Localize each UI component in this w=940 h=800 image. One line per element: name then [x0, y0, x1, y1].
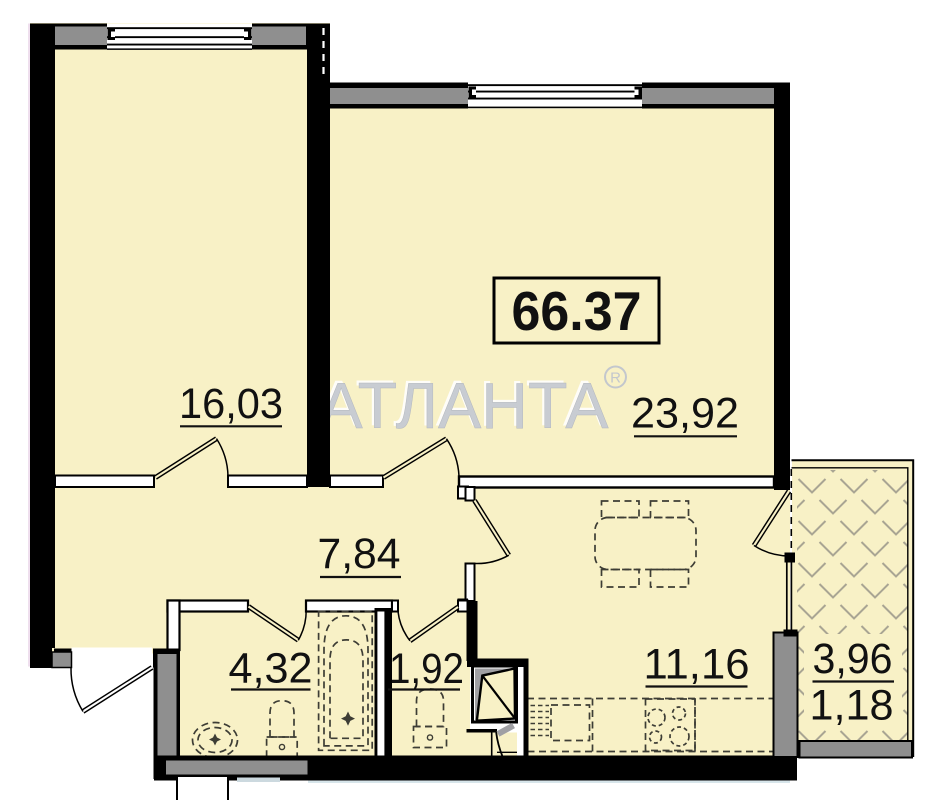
svg-text:1,92: 1,92: [389, 645, 464, 693]
svg-text:1,18: 1,18: [810, 682, 894, 730]
svg-text:66.37: 66.37: [512, 280, 642, 342]
svg-text:7,84: 7,84: [318, 530, 401, 578]
svg-text:23,92: 23,92: [631, 390, 739, 438]
svg-text:11,16: 11,16: [644, 641, 750, 689]
svg-text:R: R: [610, 370, 621, 387]
svg-text:АТЛАНТА: АТЛАНТА: [320, 369, 610, 442]
svg-text:16,03: 16,03: [179, 380, 283, 428]
svg-text:3,96: 3,96: [813, 635, 893, 683]
svg-text:4,32: 4,32: [229, 645, 313, 693]
